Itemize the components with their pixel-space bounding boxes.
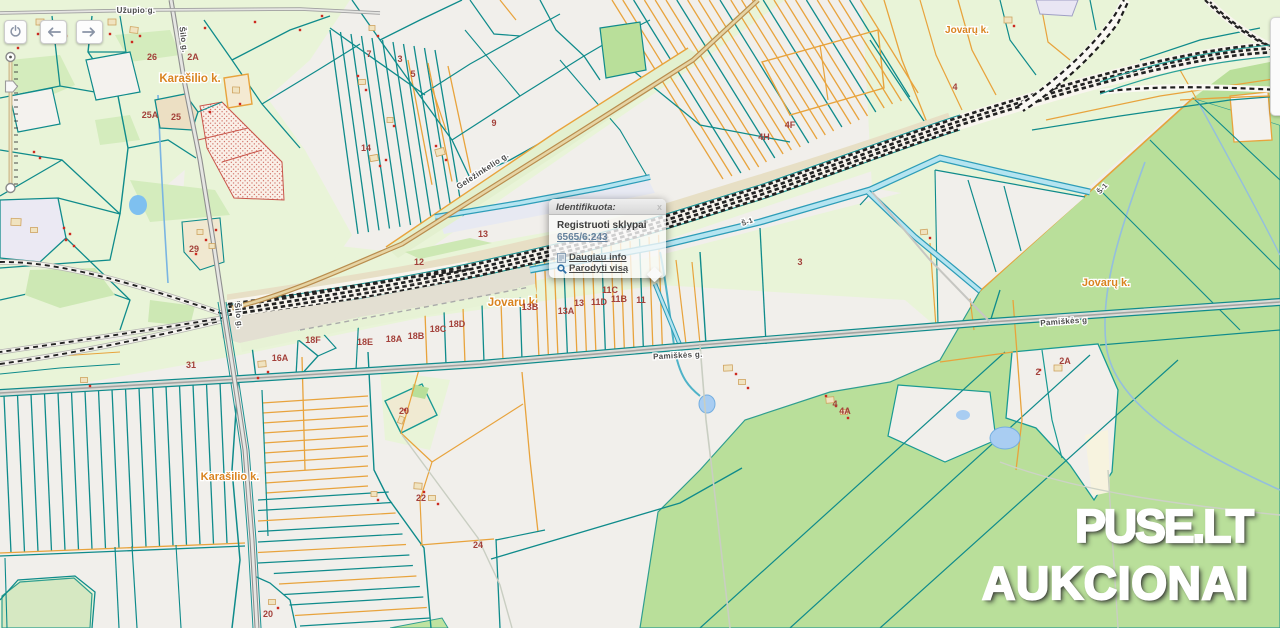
svg-text:3: 3	[797, 257, 802, 267]
svg-text:Jovarų k.: Jovarų k.	[945, 25, 989, 36]
svg-text:Karašilio k.: Karašilio k.	[201, 471, 260, 483]
svg-text:31: 31	[186, 360, 196, 370]
svg-text:25A: 25A	[142, 110, 159, 120]
svg-text:18F: 18F	[305, 335, 321, 345]
svg-text:13: 13	[574, 298, 584, 308]
svg-text:11B: 11B	[611, 294, 628, 304]
svg-text:18E: 18E	[357, 337, 373, 347]
svg-text:26: 26	[147, 52, 157, 62]
svg-text:4: 4	[952, 82, 957, 92]
svg-text:13B: 13B	[522, 302, 539, 312]
svg-text:18D: 18D	[449, 319, 466, 329]
svg-text:3: 3	[397, 54, 402, 64]
svg-text:18B: 18B	[408, 331, 425, 341]
svg-text:2A: 2A	[187, 52, 199, 62]
svg-text:29: 29	[189, 244, 199, 254]
svg-text:14: 14	[361, 143, 371, 153]
svg-text:18A: 18A	[386, 334, 403, 344]
svg-text:9: 9	[491, 118, 496, 128]
svg-text:Užupio g.: Užupio g.	[117, 6, 156, 15]
svg-text:13A: 13A	[558, 306, 575, 316]
svg-text:12: 12	[414, 257, 424, 267]
svg-text:20: 20	[263, 609, 273, 619]
svg-text:16A: 16A	[272, 353, 289, 363]
svg-text:Karašilio k.: Karašilio k.	[159, 73, 220, 85]
svg-text:11: 11	[636, 295, 646, 305]
svg-text:22: 22	[416, 493, 426, 503]
svg-text:2A: 2A	[1059, 356, 1071, 366]
svg-text:13: 13	[478, 229, 488, 239]
svg-text:4A: 4A	[839, 406, 851, 416]
svg-text:11D: 11D	[591, 297, 608, 307]
svg-text:4F: 4F	[785, 120, 796, 130]
svg-text:4: 4	[832, 399, 837, 409]
svg-text:25: 25	[171, 112, 181, 122]
svg-text:7: 7	[366, 49, 371, 59]
svg-text:2: 2	[1035, 367, 1040, 377]
svg-text:5: 5	[410, 69, 415, 79]
svg-text:Jovarų k.: Jovarų k.	[1082, 277, 1130, 289]
svg-text:24: 24	[473, 540, 483, 550]
svg-text:4H: 4H	[758, 132, 770, 142]
svg-text:18C: 18C	[430, 324, 447, 334]
svg-text:20: 20	[399, 406, 409, 416]
